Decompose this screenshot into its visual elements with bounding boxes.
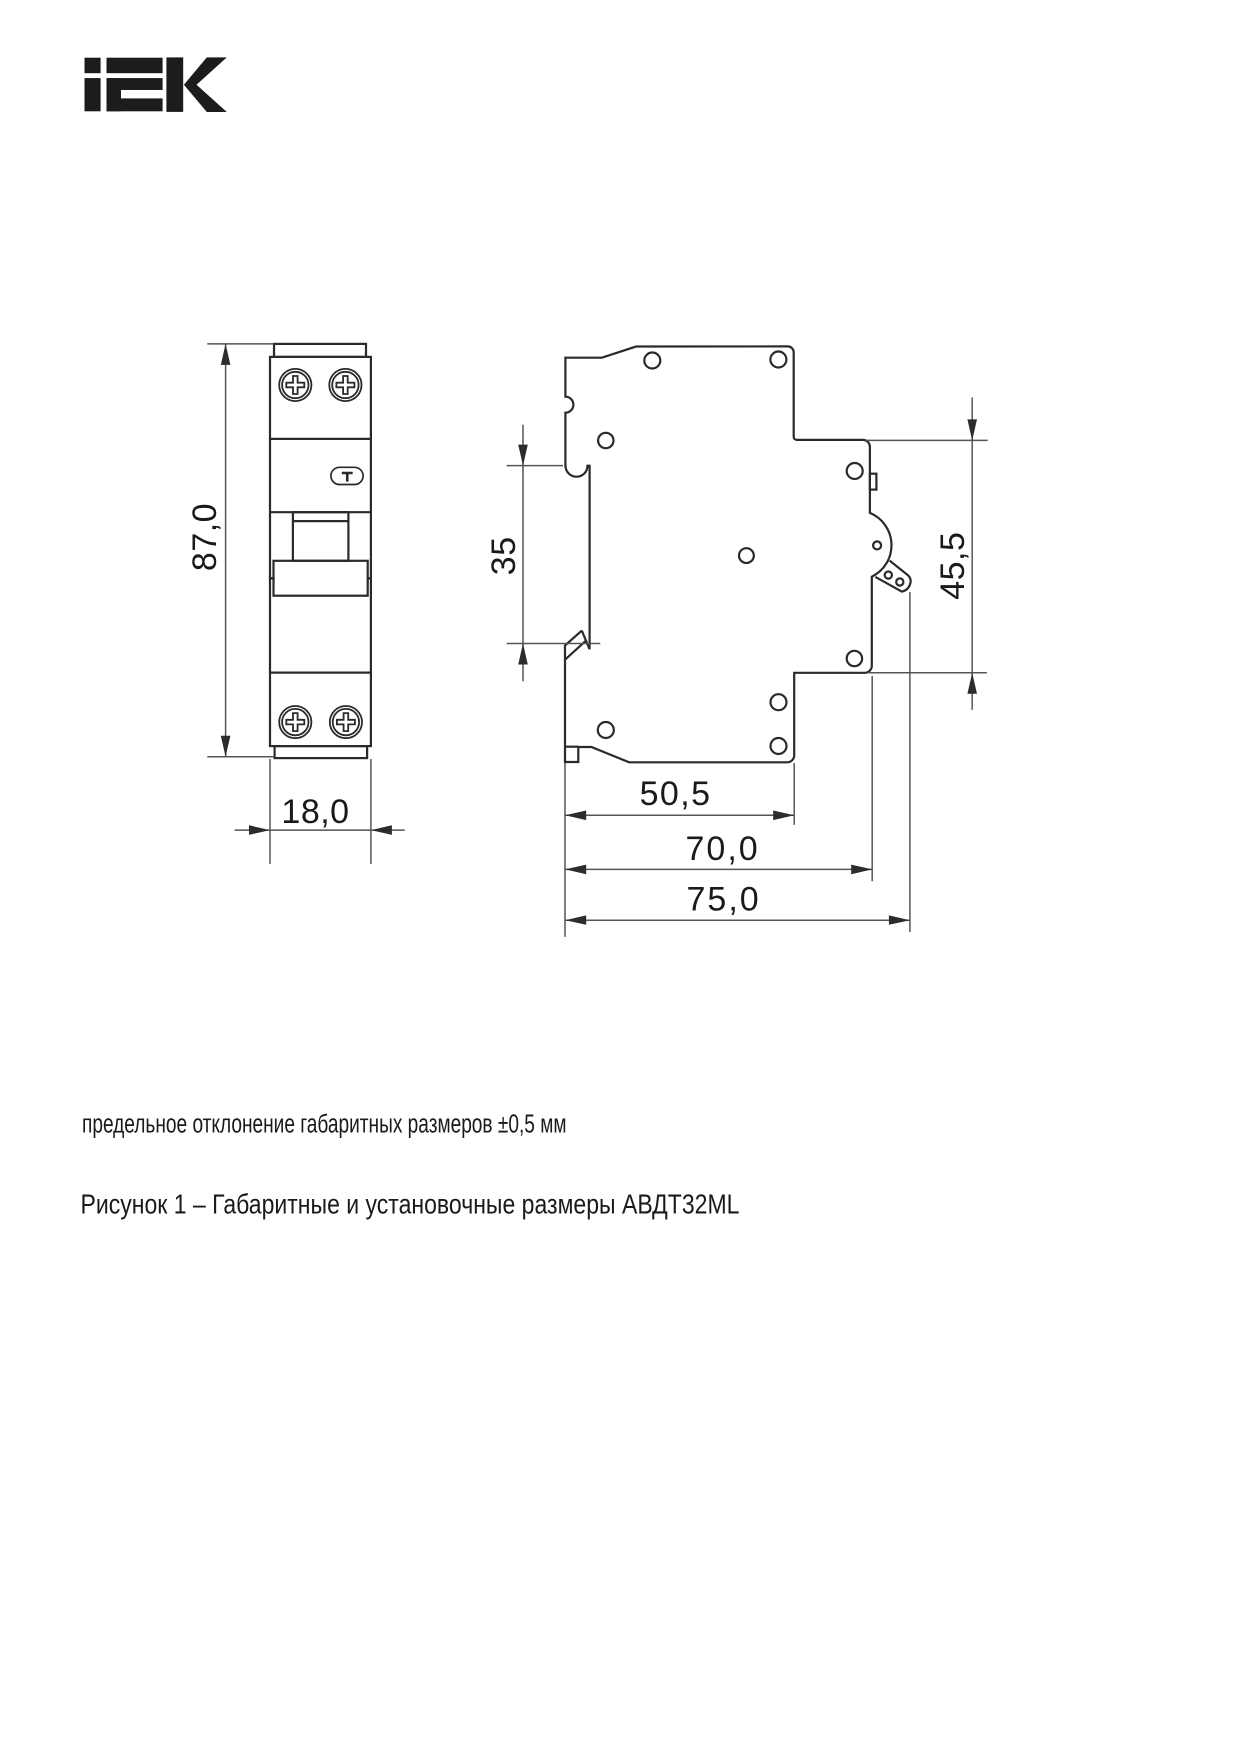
svg-text:45,5: 45,5 [934,532,972,600]
svg-text:35: 35 [485,536,523,575]
svg-text:50,5: 50,5 [640,775,712,813]
svg-text:Рисунок 1 – Габаритные и устан: Рисунок 1 – Габаритные и установочные ра… [81,1190,740,1221]
svg-text:75,0: 75,0 [687,881,761,919]
svg-text:предельное отклонение габаритн: предельное отклонение габаритных размеро… [82,1109,566,1139]
svg-text:87,0: 87,0 [186,503,224,571]
svg-text:18,0: 18,0 [281,793,349,831]
svg-text:70,0: 70,0 [686,830,760,868]
